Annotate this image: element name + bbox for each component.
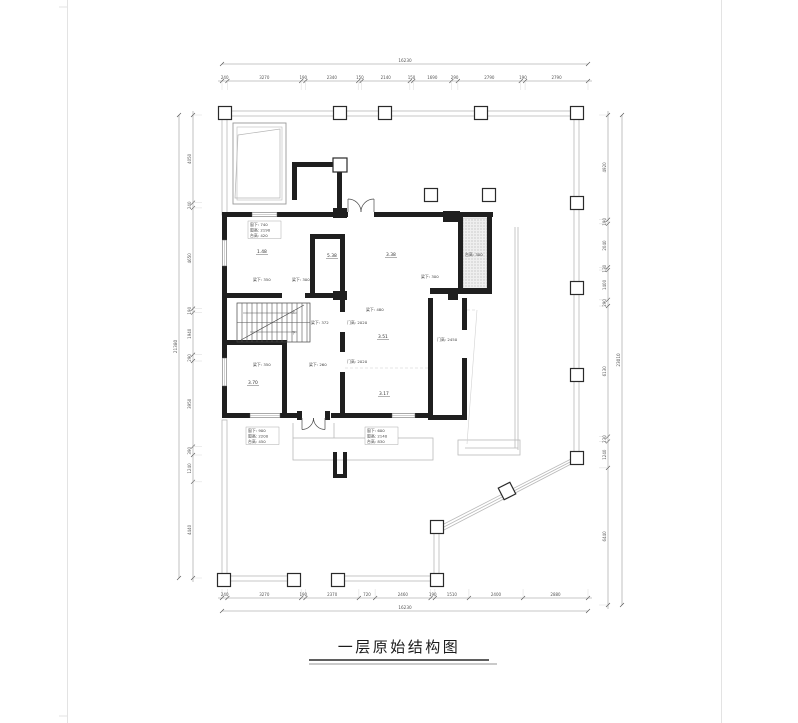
beam-height-label: 门高: 2020 bbox=[347, 359, 368, 364]
dim-label: 1510 bbox=[447, 592, 458, 597]
dim-label: 720 bbox=[363, 592, 371, 597]
stair-direction-label: 上 bbox=[292, 309, 296, 314]
windows bbox=[223, 213, 416, 418]
dim-label: 2460 bbox=[398, 592, 409, 597]
dim-label: 240 bbox=[221, 592, 229, 597]
dim-label: 1400 bbox=[602, 279, 607, 290]
beam-height-label: 梁下: 350 bbox=[253, 277, 271, 282]
info-line: 台高: 420 bbox=[250, 233, 268, 238]
dim-label: 240 bbox=[187, 201, 192, 209]
info-line: 窗下: 740 bbox=[250, 222, 268, 227]
beam-height-label: 梁下: 300 bbox=[421, 274, 439, 279]
beam-height-label: 梁下: 300 bbox=[292, 277, 310, 282]
dim-label: 150 bbox=[356, 75, 364, 80]
dim-label: 3950 bbox=[187, 398, 192, 409]
dim-label: 190 bbox=[299, 75, 307, 80]
dim-total: 16230 bbox=[398, 605, 412, 610]
window-info-block: 窗下: 600窗高: 2140台高: 830 bbox=[365, 427, 398, 445]
dim-label: 1940 bbox=[187, 328, 192, 339]
light-well bbox=[233, 123, 286, 204]
dim-strip-left: 4050240465019019402903950390124044402138… bbox=[173, 111, 202, 582]
dimension-strips: 2403270190234015021401501690290279019027… bbox=[173, 58, 624, 613]
dim-label: 190 bbox=[429, 592, 437, 597]
dim-label: 240 bbox=[221, 75, 229, 80]
dim-total: 21380 bbox=[173, 340, 178, 354]
dim-label: 290 bbox=[187, 354, 192, 362]
dim-label: 3270 bbox=[259, 592, 270, 597]
window-info-block: 窗下: 900窗高: 2200台高: 450 bbox=[246, 427, 279, 445]
dim-total: 23010 bbox=[616, 353, 621, 367]
beam-height-label: 梁下: 480 bbox=[366, 307, 384, 312]
stairs bbox=[237, 303, 310, 342]
drawing-title: 一层原始结构图 bbox=[338, 638, 461, 656]
dim-label: 150 bbox=[408, 75, 416, 80]
stair-direction-label: 下 bbox=[292, 331, 296, 335]
dim-label: 1690 bbox=[427, 75, 438, 80]
dim-strip-bottom: 2403270190237072024601901510240028801623… bbox=[218, 589, 592, 613]
info-line: 台高: 830 bbox=[367, 439, 385, 444]
dim-strip-right: 4920190204013014002906130230124064402301… bbox=[599, 111, 624, 609]
window-info-block: 窗下: 740窗高: 2190台高: 420 bbox=[248, 221, 281, 239]
site-boundary bbox=[222, 111, 579, 581]
dim-label: 390 bbox=[187, 447, 192, 455]
dim-strip-top: 2403270190234015021401501690290279019027… bbox=[218, 58, 592, 90]
info-line: 窗高: 2200 bbox=[248, 434, 269, 439]
dim-label: 2880 bbox=[550, 592, 561, 597]
columns bbox=[218, 107, 584, 587]
beam-height-label: 门高: 2450 bbox=[437, 337, 458, 342]
beam-height-label: 门高: 2020 bbox=[347, 320, 368, 325]
floor-plan-canvas: 2403270190234015021401501690290279019027… bbox=[0, 0, 798, 723]
dim-label: 2140 bbox=[381, 75, 392, 80]
info-line: 台高: 450 bbox=[248, 439, 266, 444]
beam-height-label: 梁下: 260 bbox=[309, 362, 327, 367]
dim-label: 2790 bbox=[551, 75, 562, 80]
drawing-sheet: 2403270190234015021401501690290279019027… bbox=[0, 0, 798, 723]
level-label: 1.48 bbox=[257, 249, 267, 255]
dim-label: 190 bbox=[187, 306, 192, 314]
dim-total: 16230 bbox=[398, 58, 412, 63]
info-line: 窗下: 900 bbox=[248, 428, 266, 433]
level-label: 5.38 bbox=[327, 253, 337, 259]
level-label: 3.51 bbox=[378, 334, 388, 340]
dim-label: 3270 bbox=[259, 75, 270, 80]
dim-label: 4920 bbox=[602, 162, 607, 173]
info-line: 窗下: 600 bbox=[367, 428, 385, 433]
level-label: 3.17 bbox=[379, 391, 389, 397]
dim-label: 190 bbox=[602, 218, 607, 226]
title-block: 一层原始结构图 bbox=[309, 638, 497, 664]
dim-label: 4050 bbox=[187, 153, 192, 164]
info-line: 窗高: 2190 bbox=[250, 228, 271, 233]
door-arcs bbox=[302, 199, 374, 430]
dim-label: 6440 bbox=[602, 531, 607, 542]
dim-label: 2040 bbox=[602, 240, 607, 251]
terrace-drain-line bbox=[467, 310, 477, 444]
dim-label: 4650 bbox=[187, 253, 192, 264]
dim-label: 1240 bbox=[187, 463, 192, 474]
plan-labels: 梁下: 350梁下: 300梁下: 372梁下: 480梁下: 350梁下: 2… bbox=[246, 221, 483, 445]
dim-label: 1240 bbox=[602, 449, 607, 460]
info-line: 窗高: 2140 bbox=[367, 434, 388, 439]
dim-label: 2400 bbox=[491, 592, 502, 597]
dim-label: 2370 bbox=[327, 592, 338, 597]
dim-label: 290 bbox=[602, 299, 607, 307]
dim-label: 2340 bbox=[327, 75, 338, 80]
dim-label: 130 bbox=[602, 264, 607, 272]
dim-label: 230 bbox=[602, 435, 607, 443]
dim-label: 290 bbox=[451, 75, 459, 80]
beam-height-label: 台高: 300 bbox=[465, 252, 483, 257]
dim-label: 4440 bbox=[187, 524, 192, 535]
level-label: 3.38 bbox=[386, 252, 396, 258]
level-label: 3.70 bbox=[248, 380, 258, 386]
beam-height-label: 梁下: 372 bbox=[311, 320, 329, 325]
beam-height-label: 梁下: 350 bbox=[253, 362, 271, 367]
dim-label: 190 bbox=[299, 592, 307, 597]
dim-label: 190 bbox=[519, 75, 527, 80]
dim-label: 2790 bbox=[484, 75, 495, 80]
dim-label: 6130 bbox=[602, 366, 607, 377]
